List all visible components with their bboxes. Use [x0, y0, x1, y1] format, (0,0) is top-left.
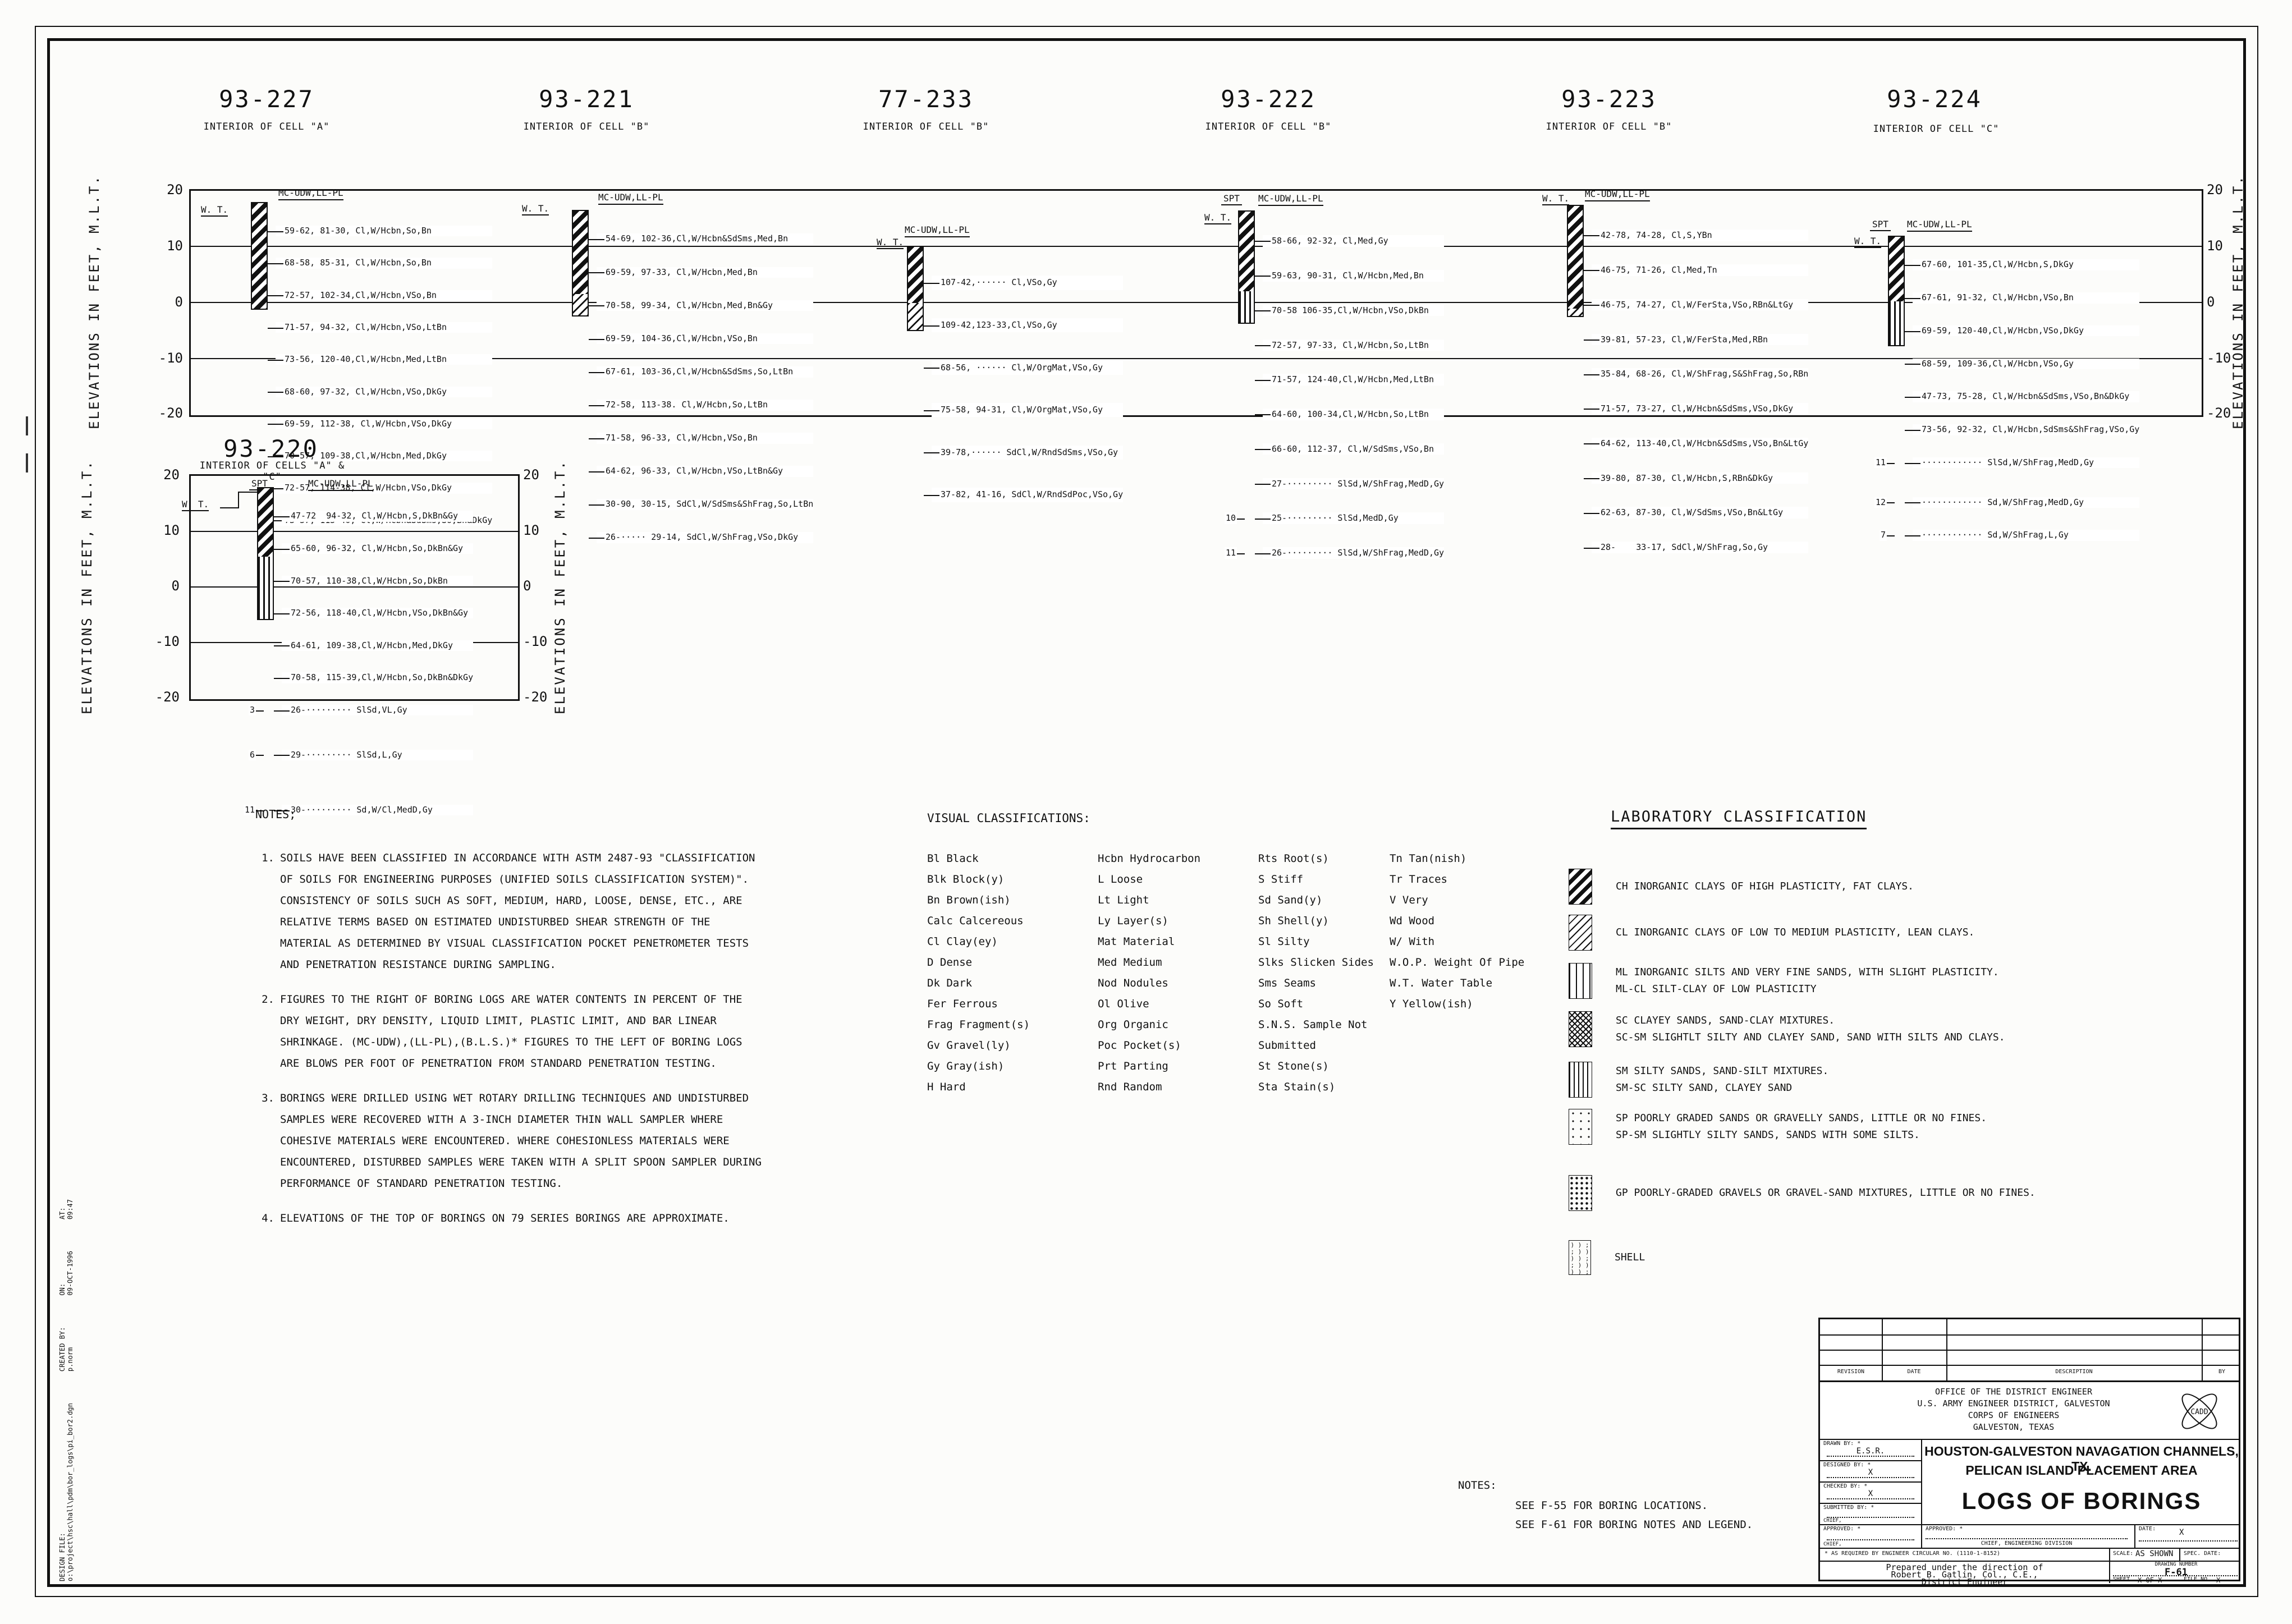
log-entry: 70-58 106-35,Cl,W/Hcbn,VSo,DkBn: [1263, 305, 1444, 316]
field-line: [1820, 1503, 1921, 1504]
lab-item-ml: ML INORGANIC SILTS AND VERY FINE SANDS, …: [1569, 963, 1999, 999]
log-entry: 1025-········· SlSd,MedD,Gy: [1263, 512, 1444, 524]
boring-column: [1567, 205, 1584, 317]
log-entry: 73-56, 120-40,Cl,W/Hcbn,Med,LtBn: [276, 354, 492, 365]
stamp-label: CREATED BY:: [58, 1327, 66, 1371]
note-item: 3. BORINGS WERE DRILLED USING WET ROTARY…: [255, 1088, 811, 1194]
approved-center-label: APPROVED: *: [1926, 1526, 1963, 1532]
log-entry: 69-59, 112-38, Cl,W/Hcbn,VSo,DkGy: [276, 419, 492, 429]
boring-column: [572, 210, 589, 316]
log-entry: 71-57, 94-32, Cl,W/Hcbn,VSo,LtBn: [276, 322, 492, 333]
lab-text: GP POORLY-GRADED GRAVELS OR GRAVEL-SAND …: [1616, 1185, 2036, 1201]
sheet-value: X OF X: [2138, 1576, 2162, 1584]
mcudw-header: MC-UDW,LL-PL: [905, 224, 970, 237]
rev-header-revision: REVISION: [1820, 1369, 1882, 1375]
boring-title: 93-220: [218, 435, 324, 462]
plot-stamp-mark: [26, 453, 28, 472]
mcudw-header: MC-UDW,LL-PL: [1258, 193, 1323, 206]
log-entry: 65-60, 96-32, Cl,W/Hcbn,So,DkBn&Gy: [282, 543, 473, 554]
spt-blow-count: 3: [249, 705, 256, 715]
mcudw-header: MC-UDW,LL-PL: [1585, 189, 1650, 201]
axis-tick: 10: [140, 522, 180, 538]
log-entry: 66-60, 112-37, Cl,W/SdSms,VSo,Bn: [1263, 443, 1444, 455]
stamp-date: ON:09-OCT-1996: [58, 1251, 74, 1295]
log-entry: 71-58, 96-33, Cl,W/Hcbn,VSo,Bn: [597, 433, 813, 444]
log-entry: 30-90, 30-15, SdCl,W/SdSms&ShFrag,So,LtB…: [597, 499, 813, 510]
water-table-label: W. T.: [1204, 212, 1231, 224]
checked-by-label: CHECKED BY: *: [1823, 1483, 1867, 1489]
axis-tick: -10: [140, 634, 180, 649]
lab-text: SM SILTY SANDS, SAND-SILT MIXTURES. SM-S…: [1616, 1063, 1828, 1097]
stamp-value: 09-OCT-1996: [66, 1251, 74, 1295]
lab-item-shell: ) ) ; ; ) ) ) ) ; ; ) ) ) ) ; SHELL: [1569, 1240, 1645, 1275]
visual-col-1: Bl Black Blk Block(y) Bn Brown(ish) Calc…: [927, 848, 1030, 1098]
visual-col-2: Hcbn Hydrocarbon L Loose Lt Light Ly Lay…: [1098, 848, 1200, 1098]
boring-column: [1238, 210, 1255, 324]
stamp-value: p.norm: [66, 1347, 74, 1371]
spt-blow-count: 6: [249, 750, 256, 760]
stamp-label: ON:: [58, 1251, 66, 1295]
lab-item-cl: CL INORGANIC CLAYS OF LOW TO MEDIUM PLAS…: [1569, 915, 1974, 951]
stratum-fat-clay: [1568, 206, 1583, 309]
log-entry: 69-59, 120-40,Cl,W/Hcbn,VSo,DkGy: [1913, 325, 2139, 337]
log-entry: 28- 33-17, SdCl,W/ShFrag,So,Gy: [1592, 542, 1808, 553]
spec-divider: [2179, 1548, 2180, 1562]
drawing-number-line: [2113, 1572, 2238, 1576]
stamp-value: o:\project\hsc\hall\pdm\bor_logs\pi_bor2…: [66, 1403, 74, 1581]
drawing-sheet: 20 10 0 -10 -20 20 10 0 -10 -20 ELEVATIO…: [0, 0, 2292, 1624]
note-number: 4.: [255, 1208, 280, 1229]
notes-title: NOTES;: [255, 804, 811, 825]
rev-header-date: DATE: [1882, 1369, 1946, 1375]
log-entry: 59-62, 81-30, Cl,W/Hcbn,So,Bn: [276, 226, 492, 236]
agency-line: CORPS OF ENGINEERS: [1820, 1410, 2207, 1420]
date-label: DATE:: [2139, 1526, 2156, 1532]
mcudw-header: MC-UDW,LL-PL: [598, 192, 663, 205]
hatch-ch-icon: [1569, 869, 1592, 905]
log-entry: 7············ Sd,W/ShFrag,L,Gy: [1913, 530, 2139, 541]
field-line: [1820, 1481, 1921, 1483]
log-entry: 72-57, 102-34,Cl,W/Hcbn,VSo,Bn: [276, 290, 492, 301]
section-line: [1820, 1548, 2239, 1549]
log-entry: 64-61, 109-38,Cl,W/Hcbn,Med,DkGy: [282, 640, 473, 651]
lab-text: SP POORLY GRADED SANDS OR GRAVELLY SANDS…: [1616, 1110, 1987, 1144]
stratum-fat-clay: [1239, 212, 1254, 291]
stratum-fat-clay: [573, 211, 588, 294]
log-entry: 26-····· 29-14, SdCl,W/ShFrag,VSo,DkGy: [597, 532, 813, 543]
hatch-gp-icon: [1569, 1175, 1592, 1211]
log-entry: 35-84, 68-26, Cl,W/ShFrag,S&ShFrag,So,RB…: [1592, 368, 1808, 380]
boring-column: [907, 246, 924, 331]
axis-tick: -20: [144, 405, 183, 421]
spec-date-label: SPEC. DATE:: [2184, 1550, 2221, 1557]
log-entry: 72-56, 118-40,Cl,W/Hcbn,VSo,DkBn&Gy: [282, 608, 473, 618]
log-entry: 62-63, 87-30, Cl,W/SdSms,VSo,Bn&LtGy: [1592, 507, 1808, 519]
scale-value: AS SHOWN: [2135, 1549, 2173, 1558]
log-entries: 42-78, 74-28, Cl,S,YBn 46-75, 71-26, Cl,…: [1592, 207, 1808, 576]
spt-header: SPT: [1221, 193, 1242, 205]
note-number: 1.: [255, 847, 280, 975]
stratum-fat-clay: [1889, 237, 1904, 301]
boring-title: 93-223: [1556, 85, 1662, 113]
cadd-logo-icon: CADD: [2174, 1386, 2225, 1437]
spt-blow-count: 10: [1225, 512, 1237, 524]
boring-title: 77-233: [873, 85, 979, 113]
prepared-line-3: District Engineer: [1820, 1577, 2109, 1587]
stratum-fat-clay: [258, 488, 273, 557]
shell-symbol-icon: ) ) ; ; ) ) ) ) ; ; ) ) ) ) ;: [1569, 1240, 1591, 1275]
log-entry-text: 26-········· SlSd,W/ShFrag,MedD,Gy: [1272, 548, 1444, 558]
plot-stamp: DESIGN FILE:o:\project\hsc\hall\pdm\bor_…: [58, 1065, 74, 1581]
log-entry: 37-82, 41-16, SdCl,W/RndSdPoc,VSo,Gy: [932, 488, 1123, 502]
mcudw-header: MC-UDW,LL-PL: [1907, 219, 1972, 232]
date-divider: [2134, 1524, 2135, 1548]
log-entry: 71-57, 73-27, Cl,W/Hcbn&SdSms,VSo,DkGy: [1592, 403, 1808, 415]
water-table-label: W. T.: [522, 203, 549, 215]
log-entry-text: ············ Sd,W/ShFrag,MedD,Gy: [1922, 497, 2084, 507]
log-entry: 39-80, 87-30, Cl,W/Hcbn,S,RBn&DkGy: [1592, 472, 1808, 484]
log-entry-text: 29-········· SlSd,L,Gy: [291, 750, 402, 760]
notes-block: NOTES; 1. SOILS HAVE BEEN CLASSIFIED IN …: [255, 804, 811, 1229]
log-entry: 629-········· SlSd,L,Gy: [282, 750, 473, 760]
rev-header-by: BY: [2202, 1369, 2242, 1375]
sheet-main-title: LOGS OF BORINGS: [1922, 1488, 2241, 1515]
lab-classification-title: LABORATORY CLASSIFICATION: [1611, 808, 1867, 829]
stamp-design-file: DESIGN FILE:o:\project\hsc\hall\pdm\bor_…: [58, 1403, 74, 1581]
approved-left-label: APPROVED: *: [1823, 1526, 1860, 1532]
log-entry: 11············ SlSd,W/ShFrag,MedD,Gy: [1913, 457, 2139, 469]
spt-header: SPT: [1870, 219, 1891, 231]
log-entry: 71-57, 124-40,Cl,W/Hcbn,Med,LtBn: [1263, 374, 1444, 386]
axis-tick: -20: [140, 689, 180, 705]
log-entry: 47-73, 75-28, Cl,W/Hcbn&SdSms,VSo,Bn&DkG…: [1913, 391, 2139, 402]
spt-blow-count: 11: [244, 805, 256, 815]
log-entry: 27-········· SlSd,W/ShFrag,MedD,Gy: [1263, 478, 1444, 490]
plot-stamp-mark: [26, 416, 28, 435]
log-entry: 69-59, 97-33, Cl,W/Hcbn,Med,Bn: [597, 267, 813, 278]
note-item: 4. ELEVATIONS OF THE TOP OF BORINGS ON 7…: [255, 1208, 811, 1229]
rev-header-description: DESCRIPTION: [1946, 1369, 2202, 1375]
stratum-silty-sand: [1239, 291, 1254, 323]
section-line: [1820, 1524, 2239, 1525]
log-entry: 54-69, 102-36,Cl,W/Hcbn&SdSms,Med,Bn: [597, 233, 813, 245]
log-entry: 72-58, 113-38. Cl,W/Hcbn,So,LtBn: [597, 400, 813, 411]
boring-subtitle: INTERIOR OF CELL "B": [842, 121, 1010, 132]
axis-tick: 10: [144, 238, 183, 254]
log-entry: 326-········· SlSd,VL,Gy: [282, 705, 473, 715]
hatch-ml-icon: [1569, 963, 1592, 999]
log-entry: 70-58, 99-34, Cl,W/Hcbn,Med,Bn&Gy: [597, 300, 813, 311]
visual-classifications-title: VISUAL CLASSIFICATIONS:: [927, 811, 1090, 825]
boring-subtitle: INTERIOR OF CELL "B": [1181, 121, 1355, 132]
date-line: [2139, 1536, 2238, 1542]
lab-text: SC CLAYEY SANDS, SAND-CLAY MIXTURES. SC-…: [1616, 1012, 2005, 1046]
lab-text: CL INORGANIC CLAYS OF LOW TO MEDIUM PLAS…: [1616, 924, 1974, 941]
log-entry: 64-62, 96-33, Cl,W/Hcbn,VSo,LtBn&Gy: [597, 466, 813, 477]
axis-tick: 0: [140, 578, 180, 594]
stamp-time: AT:09:47: [58, 1199, 74, 1219]
boring-title: 93-222: [1215, 85, 1322, 113]
boring-title: 93-224: [1881, 85, 1988, 113]
boring-title: 93-221: [533, 85, 640, 113]
agency-line: U.S. ARMY ENGINEER DISTRICT, GALVESTON: [1820, 1398, 2207, 1409]
file-no-value: X: [2216, 1576, 2220, 1584]
submitted-by-label: SUBMITTED BY: *: [1823, 1504, 1874, 1511]
hatch-sp-icon: [1569, 1109, 1592, 1145]
note-text: SOILS HAVE BEEN CLASSIFIED IN ACCORDANCE…: [280, 847, 763, 975]
log-entry: 68-58, 85-31, Cl,W/Hcbn,So,Bn: [276, 258, 492, 268]
lab-item-ch: CH INORGANIC CLAYS OF HIGH PLASTICITY, F…: [1569, 869, 1914, 905]
scale-label: SCALE:: [2113, 1550, 2133, 1557]
log-entry: 69-59, 104-36,Cl,W/Hcbn,VSo,Bn: [597, 333, 813, 345]
stamp-label: AT:: [58, 1199, 66, 1219]
agency-line: GALVESTON, TEXAS: [1820, 1422, 2207, 1432]
chief-label: CHIEF,: [1823, 1518, 1842, 1524]
stratum-fat-clay: [252, 203, 267, 309]
stratum-silty-sand: [1889, 301, 1904, 345]
log-entries: 58-66, 92-32, Cl,Med,Gy 59-63, 90-31, Cl…: [1263, 212, 1444, 582]
checked-by-value: X: [1827, 1489, 1914, 1499]
axis-tick: 0: [144, 294, 183, 310]
spt-blow-count: 11: [1874, 457, 1887, 469]
hatch-sm-icon: [1569, 1062, 1592, 1098]
note-item: 2. FIGURES TO THE RIGHT OF BORING LOGS A…: [255, 989, 811, 1074]
field-line: [1820, 1460, 1921, 1461]
stratum-sandy-clay: [908, 303, 923, 330]
mcudw-header: MC-UDW,LL-PL: [278, 187, 343, 200]
water-table-label: W. T.: [1854, 236, 1881, 248]
designed-by-label: DESIGNED BY: *: [1823, 1462, 1871, 1468]
hatch-cl-icon: [1569, 915, 1592, 951]
stamp-created-by: CREATED BY:p.norm: [58, 1327, 74, 1371]
log-entry-text: 26-········· SlSd,VL,Gy: [291, 705, 407, 715]
stamp-value: 09:47: [66, 1199, 74, 1219]
lab-item-gp: GP POORLY-GRADED GRAVELS OR GRAVEL-SAND …: [1569, 1175, 2036, 1211]
designed-by-value: X: [1827, 1468, 1914, 1478]
log-entry: 73-56, 92-32, Cl,W/Hcbn,SdSms&ShFrag,VSo…: [1913, 424, 2139, 435]
scale-divider: [2109, 1548, 2110, 1562]
log-entry: 1126-········· SlSd,W/ShFrag,MedD,Gy: [1263, 547, 1444, 559]
lab-item-sc: SC CLAYEY SANDS, SAND-CLAY MIXTURES. SC-…: [1569, 1011, 2005, 1047]
boring-column: [251, 202, 268, 310]
lab-item-sp: SP POORLY GRADED SANDS OR GRAVELLY SANDS…: [1569, 1109, 1987, 1145]
section-line: [1820, 1439, 2239, 1440]
water-table-label: W. T.: [1542, 193, 1569, 205]
log-entry: 47-72 94-32, Cl,W/Hcbn,S,DkBn&Gy: [282, 511, 473, 521]
axis-title-left: ELEVATIONS IN FEET, M.L.T.: [86, 156, 102, 448]
chief-label: CHIEF,: [1823, 1542, 1842, 1547]
visual-col-3: Rts Root(s) S Stiff Sd Sand(y) Sh Shell(…: [1258, 848, 1374, 1098]
submitted-by-line: [1827, 1512, 1914, 1518]
note-text: FIGURES TO THE RIGHT OF BORING LOGS ARE …: [280, 989, 763, 1074]
axis-tick: 20: [140, 467, 180, 483]
spt-blow-count: 12: [1874, 497, 1887, 508]
boring-subtitle: INTERIOR OF CELL "B": [1522, 121, 1696, 132]
log-entry: 75-58, 94-31, Cl,W/OrgMat,VSo,Gy: [932, 403, 1123, 417]
hatch-sc-icon: [1569, 1011, 1592, 1047]
log-entry: 39-81, 57-23, Cl,W/FerSta,Med,RBn: [1592, 334, 1808, 346]
log-entry: 109-42,123-33,Cl,VSo,Gy: [932, 318, 1123, 332]
axis-tick: 20: [144, 182, 183, 198]
visual-col-4: Tn Tan(nish) Tr Traces V Very Wd Wood W/…: [1390, 848, 1524, 1015]
water-table-leader: [220, 507, 239, 508]
log-entry-text: 25-········· SlSd,MedD,Gy: [1272, 513, 1399, 523]
axis-title-right: ELEVATIONS IN FEET, M.L.T.: [552, 441, 568, 733]
log-entry: 70-57, 110-38,Cl,W/Hcbn,So,DkBn: [282, 576, 473, 586]
agency-line: OFFICE OF THE DISTRICT ENGINEER: [1820, 1387, 2207, 1397]
project-title-2: PELICAN ISLAND PLACEMENT AREA: [1922, 1463, 2241, 1478]
sheet-label: SHEET: [2113, 1576, 2130, 1582]
note-number: 2.: [255, 989, 280, 1074]
approved-left-line: [1827, 1535, 1914, 1540]
log-entries: 54-69, 102-36,Cl,W/Hcbn&SdSms,Med,Bn 69-…: [597, 212, 813, 566]
log-entries: 47-72 94-32, Cl,W/Hcbn,S,DkBn&Gy 65-60, …: [282, 489, 473, 837]
log-entry: 64-62, 113-40,Cl,W/Hcbn&SdSms,VSo,Bn&LtG…: [1592, 438, 1808, 449]
note-item: 1. SOILS HAVE BEEN CLASSIFIED IN ACCORDA…: [255, 847, 811, 975]
log-entry: 59-63, 90-31, Cl,W/Hcbn,Med,Bn: [1263, 270, 1444, 282]
water-table-label: W. T.: [877, 237, 904, 249]
stratum-sandy-clay: [1568, 309, 1583, 316]
log-entry: 39-78,······ SdCl,W/RndSdSms,VSo,Gy: [932, 446, 1123, 460]
stratum-fat-clay: [908, 247, 923, 303]
drawn-by-value: E.S.R.: [1827, 1447, 1914, 1457]
log-entry: 72-57, 97-33, Cl,W/Hcbn,So,LtBn: [1263, 340, 1444, 351]
log-entry: 68-59, 109-36,Cl,W/Hcbn,VSo,Gy: [1913, 359, 2139, 370]
boring-subtitle: INTERIOR OF CELL "C": [1849, 123, 2023, 135]
svg-text:CADD: CADD: [2190, 1408, 2208, 1416]
stratum-silty-sand: [258, 557, 273, 619]
circular-footnote: * AS REQUIRED BY ENGINEER CIRCULAR NO. (…: [1825, 1550, 2000, 1557]
log-entry: 68-56, ······ Cl,W/OrgMat,VSo,Gy: [932, 361, 1123, 375]
note-number: 3.: [255, 1088, 280, 1194]
spt-blow-count: 11: [1225, 547, 1237, 559]
water-table-leader: [238, 492, 257, 493]
log-entry: 58-66, 92-32, Cl,Med,Gy: [1263, 235, 1444, 247]
boring-subtitle: INTERIOR OF CELL "A": [182, 121, 351, 132]
title-block: REVISION DATE DESCRIPTION BY OFFICE OF T…: [1818, 1318, 2240, 1581]
drawn-by-label: DRAWN BY: *: [1823, 1441, 1860, 1447]
lab-text: CH INORGANIC CLAYS OF HIGH PLASTICITY, F…: [1616, 878, 1914, 895]
log-entry-text: ············ SlSd,W/ShFrag,MedD,Gy: [1922, 457, 2094, 467]
boring-column: [1888, 236, 1905, 346]
axis-title-right: ELEVATIONS IN FEET, M.L.T.: [2230, 156, 2246, 448]
water-table-leader: [238, 492, 239, 508]
boring-column: [257, 487, 274, 620]
boring-title: 93-227: [213, 85, 320, 113]
water-table-label: W. T.: [201, 204, 228, 217]
log-entries: 67-60, 101-35,Cl,W/Hcbn,S,DkGy 67-61, 91…: [1913, 237, 2139, 563]
note-text: ELEVATIONS OF THE TOP OF BORINGS ON 79 S…: [280, 1208, 763, 1229]
log-entries: 107-42,······ Cl,VSo,Gy 109-42,123-33,Cl…: [932, 247, 1123, 530]
log-entry: 67-61, 103-36,Cl,W/Hcbn&SdSms,So,LtBn: [597, 366, 813, 378]
log-entry: 67-60, 101-35,Cl,W/Hcbn,S,DkGy: [1913, 259, 2139, 270]
log-entry: 46-75, 74-27, Cl,W/FerSta,VSo,RBn&LtGy: [1592, 299, 1808, 311]
log-entry: 107-42,······ Cl,VSo,Gy: [932, 276, 1123, 290]
log-entry: 46-75, 71-26, Cl,Med,Tn: [1592, 264, 1808, 276]
stratum-sandy-clay: [573, 294, 588, 315]
stamp-label: DESIGN FILE:: [58, 1403, 66, 1581]
file-no-label: FILE NO.: [2184, 1576, 2211, 1582]
ref-note-line: SEE F-55 FOR BORING LOCATIONS.: [1515, 1499, 1708, 1512]
ref-notes-title: NOTES:: [1458, 1479, 1497, 1492]
lab-item-sm: SM SILTY SANDS, SAND-SILT MIXTURES. SM-S…: [1569, 1062, 1828, 1098]
note-text: BORINGS WERE DRILLED USING WET ROTARY DR…: [280, 1088, 763, 1194]
chief-engineering-division: CHIEF, ENGINEERING DIVISION: [1926, 1540, 2128, 1547]
log-entry: 64-60, 100-34,Cl,W/Hcbn,So,LtBn: [1263, 409, 1444, 420]
log-entry: 12············ Sd,W/ShFrag,MedD,Gy: [1913, 497, 2139, 508]
approved-center-line: [1926, 1534, 2128, 1539]
log-entry: 42-78, 74-28, Cl,S,YBn: [1592, 230, 1808, 241]
water-table-label: W. T.: [182, 499, 209, 511]
spt-blow-count: 7: [1880, 530, 1887, 541]
boring-subtitle: INTERIOR OF CELL "B": [502, 121, 671, 132]
log-entry: 68-60, 97-32, Cl,W/Hcbn,VSo,DkGy: [276, 387, 492, 397]
ref-note-line: SEE F-61 FOR BORING NOTES AND LEGEND.: [1515, 1519, 1753, 1531]
log-entry-text: ············ Sd,W/ShFrag,L,Gy: [1922, 530, 2069, 540]
log-entry: 67-61, 91-32, Cl,W/Hcbn,VSo,Bn: [1913, 292, 2139, 304]
lab-text: ML INORGANIC SILTS AND VERY FINE SANDS, …: [1616, 964, 1999, 998]
axis-tick: -10: [144, 350, 183, 366]
gridline-minus10: [191, 358, 2202, 359]
axis-title-left: ELEVATIONS IN FEET, M.L.T.: [79, 441, 95, 733]
lab-text: SHELL: [1615, 1249, 1645, 1266]
log-entry: 70-58, 115-39,Cl,W/Hcbn,So,DkBn&DkGy: [282, 672, 473, 683]
